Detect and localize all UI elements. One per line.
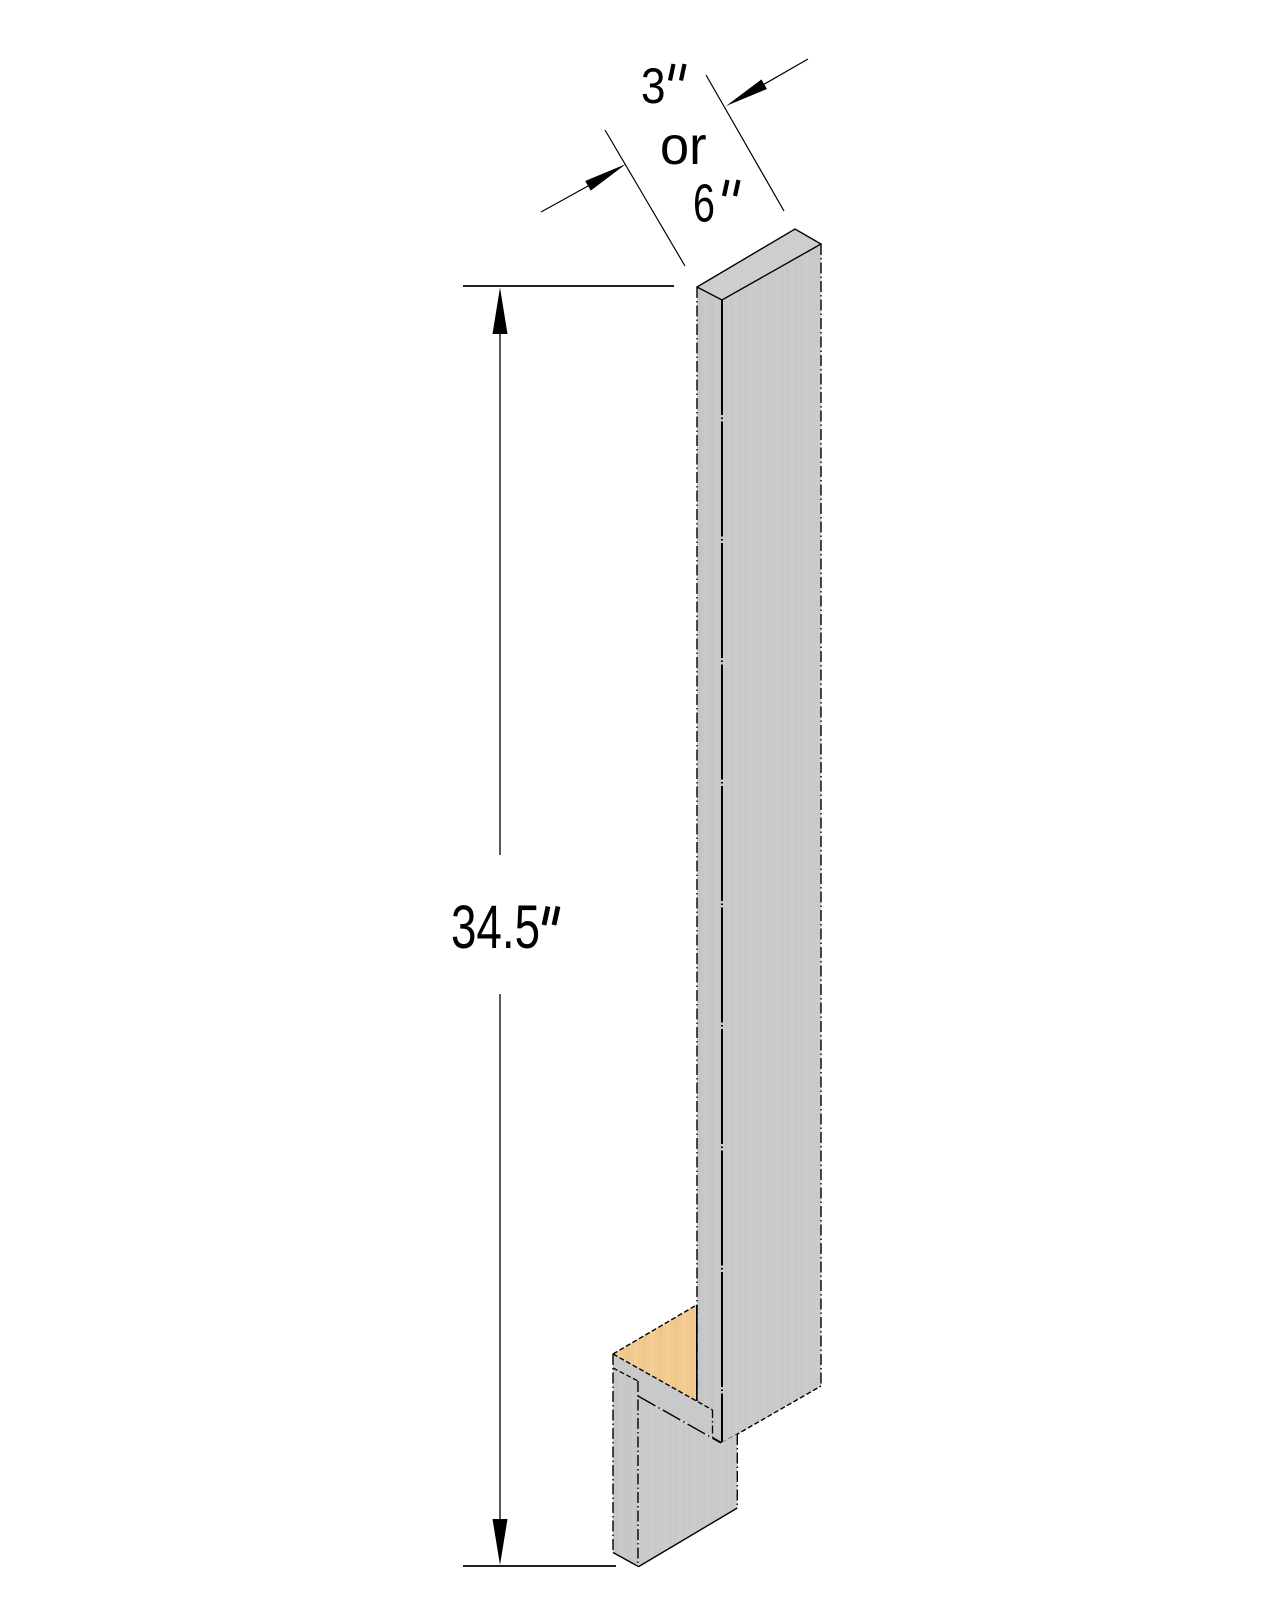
svg-text:6: 6 (693, 174, 715, 235)
svg-text:34.5: 34.5 (451, 894, 540, 962)
svg-text:3: 3 (641, 57, 665, 113)
svg-text:or: or (660, 116, 707, 176)
